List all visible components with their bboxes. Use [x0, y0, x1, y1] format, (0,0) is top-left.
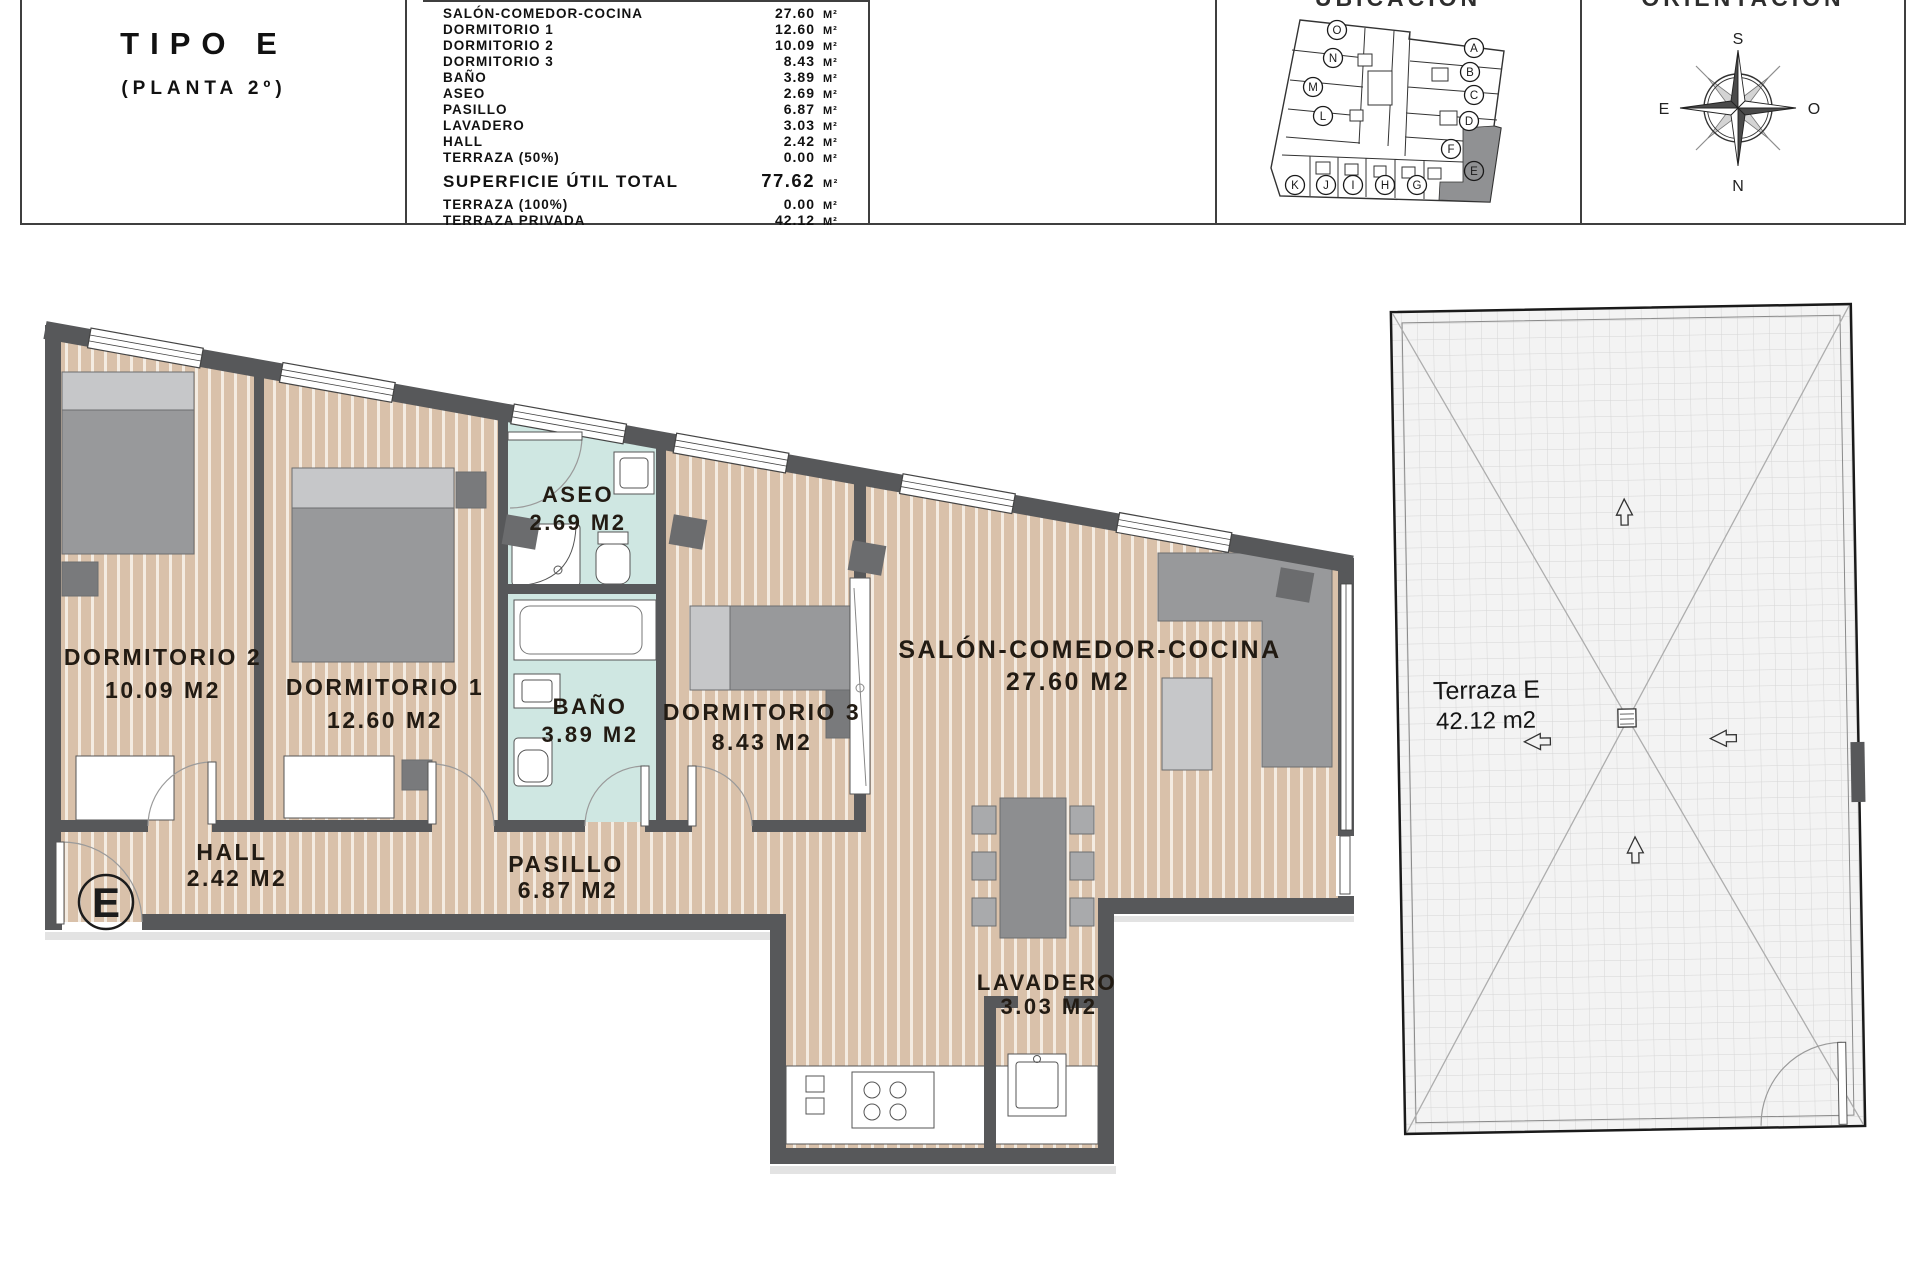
room-area: 3.03 M2: [1001, 994, 1098, 1019]
room-label: HALL: [196, 839, 267, 865]
toilet-aseo: [596, 544, 630, 584]
room-area: 8.43 M2: [712, 729, 813, 755]
terrace-door-leaf: [1838, 1042, 1847, 1124]
room-label: BAÑO: [553, 694, 628, 719]
terrace-label: Terraza E: [1433, 676, 1540, 706]
kitchen-module: [806, 1098, 824, 1114]
closet-dorm2: [76, 756, 174, 820]
kitchen-module: [806, 1076, 824, 1092]
room-area: 2.69 M2: [530, 510, 627, 535]
pillow-dorm2: [62, 372, 194, 410]
room-area: 6.87 M2: [518, 877, 619, 903]
entrance-mark: E: [92, 879, 120, 926]
nightstand-dorm2: [62, 562, 98, 596]
room-label: DORMITORIO 3: [663, 699, 861, 725]
room-area: 12.60 M2: [327, 707, 443, 733]
closet-dorm1: [284, 756, 394, 818]
nightstand-dorm1: [456, 472, 486, 508]
wall-shadows: [45, 916, 1354, 1174]
pillow-dorm1: [292, 468, 454, 508]
room-area: 3.89 M2: [542, 722, 639, 747]
terrace-area: 42.12 m2: [1436, 707, 1537, 736]
room-area: 27.60 M2: [1006, 668, 1130, 696]
bathtub: [514, 600, 656, 660]
room-label: DORMITORIO 2: [64, 644, 262, 670]
room-label: ASEO: [542, 482, 614, 507]
stove: [852, 1072, 934, 1128]
dining-table: [1000, 798, 1066, 938]
room-area: 10.09 M2: [105, 677, 221, 703]
terrace-glass-door: [1341, 584, 1352, 830]
terrace-wall-nub: [1850, 742, 1865, 802]
room-label: DORMITORIO 1: [286, 674, 484, 700]
terrace: Terraza E 42.12 m2: [1391, 304, 1871, 1134]
floor-plan: DORMITORIO 2 10.09 M2 DORMITORIO 1 12.60…: [0, 0, 1920, 1280]
coffee-table: [1162, 678, 1212, 770]
room-area: 2.42 M2: [187, 865, 288, 891]
room-label: SALÓN-COMEDOR-COCINA: [898, 634, 1281, 664]
terrace-door-leaf: [1340, 836, 1350, 894]
room-label: PASILLO: [508, 851, 623, 877]
room-label: LAVADERO: [977, 970, 1117, 995]
pillow-dorm3: [690, 606, 730, 690]
